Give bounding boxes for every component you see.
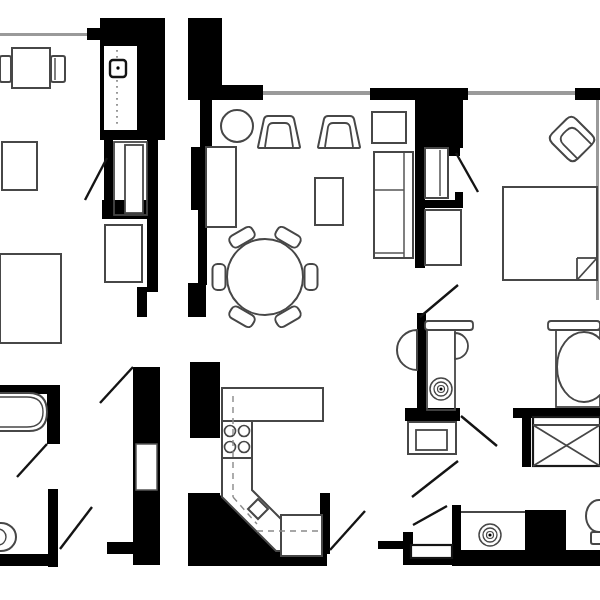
wardrobe [425, 148, 448, 198]
bed [503, 187, 597, 280]
sink-bowl [397, 330, 417, 370]
armchair [318, 116, 360, 148]
wall [190, 362, 220, 438]
wall [525, 510, 566, 551]
floor-plan-canvas [0, 0, 600, 600]
dining-chair [305, 264, 318, 290]
wall [522, 418, 531, 467]
door-swing [330, 511, 365, 550]
wall [452, 550, 600, 566]
wall [87, 28, 102, 40]
safe-dot [116, 66, 119, 69]
entry-closet-niche [104, 46, 137, 130]
kitchen-counter-top [222, 388, 323, 421]
door-swing [420, 285, 458, 317]
door-swing [412, 461, 458, 497]
armchair [258, 116, 300, 148]
closet-door-leaf [125, 145, 143, 213]
wardrobe [425, 210, 461, 265]
shower-bench [411, 545, 452, 558]
door-swing [100, 367, 133, 403]
wall [415, 100, 463, 148]
shower-stall [427, 330, 455, 410]
vanity-counter [548, 321, 600, 330]
vanity-counter [425, 321, 473, 330]
wall [147, 140, 158, 292]
dining-table [227, 239, 303, 315]
wall [222, 85, 263, 100]
window-bench [2, 142, 37, 190]
sofa [374, 152, 413, 258]
floor-plan-drawing [0, 0, 600, 600]
soaking-tub [557, 332, 600, 402]
chair [51, 56, 65, 82]
door-swing [17, 444, 47, 477]
shower-drain-dot [488, 533, 491, 536]
dining-chair [213, 264, 226, 290]
door-swing [461, 416, 497, 446]
shower-drain-dot [439, 387, 442, 390]
wall [200, 100, 212, 148]
wall [191, 147, 207, 210]
stool [221, 110, 253, 142]
wall [0, 554, 58, 566]
wall [188, 18, 222, 100]
door-swing [60, 507, 92, 549]
wall [137, 287, 147, 317]
wall [107, 542, 135, 554]
accent-chair [547, 114, 596, 163]
window-line-center [263, 91, 370, 95]
toilet-base [591, 532, 600, 544]
wall [378, 541, 403, 549]
closet-niche [136, 444, 157, 490]
wall [415, 148, 425, 268]
door-swing [456, 153, 478, 192]
wall [47, 385, 60, 444]
wall [452, 505, 461, 551]
wall [455, 192, 463, 208]
kitchen-appliance [281, 515, 322, 556]
sink-bowl [455, 333, 468, 359]
coffee-table [315, 178, 343, 225]
breakfast-table [12, 48, 50, 88]
bathtub [0, 393, 47, 431]
wall [188, 283, 206, 317]
window-line-west [0, 33, 88, 36]
wall [575, 88, 600, 100]
door-swing [85, 158, 107, 200]
chair [0, 56, 11, 82]
toilet [586, 500, 600, 532]
door-swing [413, 506, 447, 525]
wall [370, 88, 468, 100]
console-table [206, 147, 236, 227]
cabinet [105, 225, 142, 282]
window-line-right [468, 91, 575, 95]
square-table [0, 254, 61, 343]
toilet [0, 523, 16, 551]
tv-cabinet [372, 112, 406, 143]
